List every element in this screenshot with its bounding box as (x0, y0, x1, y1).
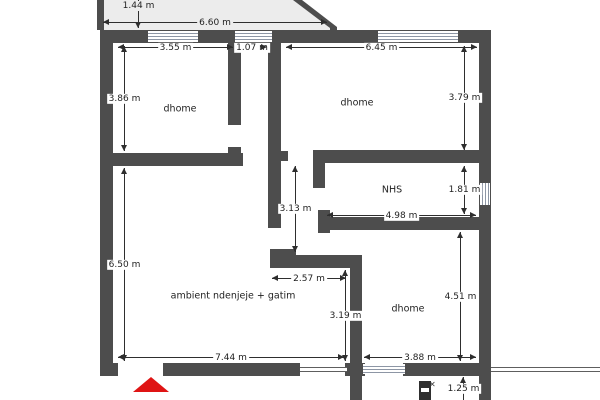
wall-extension-line (491, 367, 600, 372)
dimension-label: 7.44 m (213, 352, 249, 362)
dimension-nhs-height: 1.81 m (464, 166, 465, 214)
wall-nhs-north (313, 150, 491, 163)
dimension-balcony-depth: 1.44 m (138, 0, 139, 28)
dimension-label: 3.86 m (107, 93, 143, 103)
dimension-living-width: 7.44 m (118, 357, 344, 358)
door-swing-mark: ✕ (429, 381, 436, 389)
wall-room1-south (113, 153, 243, 166)
dimension-label: 6.45 m (364, 42, 400, 52)
dimension-label: 3.13 m (278, 204, 314, 214)
room-label-dhome-top-right: dhome (341, 98, 374, 109)
dimension-label: 1.81 m (447, 185, 483, 195)
wall-corridor-left (228, 43, 241, 125)
wall-left (100, 30, 113, 373)
dimension-label: 3.55 m (158, 42, 194, 52)
dimension-label: 1.25 m (446, 383, 482, 393)
wall-central (268, 43, 281, 228)
dimension-label: 3.88 m (402, 352, 438, 362)
wall-right (479, 30, 491, 400)
dimension-nook-height: 3.19 m (345, 270, 346, 361)
dimension-nhs-width: 4.98 m (327, 215, 476, 216)
wall-nook-north (270, 255, 362, 268)
dimension-label: 6.50 m (107, 259, 143, 269)
window-bottom-2 (363, 364, 405, 374)
room-label-dhome-top-left: dhome (164, 104, 197, 115)
dimension-room3-width: 3.88 m (364, 357, 476, 358)
entrance-arrow-icon (133, 377, 169, 392)
dimension-nook-width: 2.57 m (272, 278, 346, 279)
dimension-balcony-width: 6.60 m (103, 22, 327, 23)
wall-central-tab (281, 151, 288, 161)
dimension-room2-height: 3.79 m (464, 46, 465, 150)
room-label-nhs: NHS (382, 185, 402, 196)
floor-plan: 1.44 m 6.60 m 3.55 m 1.07 m 6.45 m 3.86 … (0, 0, 600, 400)
room-label-dhome-bottom: dhome (392, 304, 425, 315)
dimension-label: 4.98 m (384, 210, 420, 220)
dimension-label: 4.51 m (443, 291, 479, 301)
dimension-label: 2.57 m (291, 273, 327, 283)
dimension-corridor-width: 1.07 m (237, 47, 267, 48)
dimension-label: 1.44 m (121, 1, 157, 11)
wall-bottom-a (163, 363, 300, 376)
door-symbol-slit (421, 388, 429, 392)
dimension-entry-width: 1.25 m (463, 377, 464, 400)
wall-room3-west (350, 255, 362, 400)
wall-nhs-north-tab (313, 163, 325, 188)
window-bottom-1 (300, 367, 347, 372)
room-label-living-kitchen: ambient ndenjeje + gatim (171, 291, 296, 302)
wall-bottom-left-stub (100, 363, 118, 376)
window-top-3 (378, 31, 458, 42)
wall-room1-south-notch (228, 147, 241, 153)
wall-bottom-c (403, 363, 491, 376)
dimension-room2-width: 6.45 m (286, 47, 477, 48)
dimension-room3-height: 4.51 m (460, 232, 461, 361)
dimension-living-height: 6.50 m (124, 168, 125, 361)
window-top-2 (235, 31, 272, 42)
dimension-label: 6.60 m (197, 17, 233, 27)
dimension-label: 3.19 m (328, 310, 364, 320)
dimension-room1-height: 3.86 m (124, 46, 125, 151)
dimension-room1-width: 3.55 m (118, 47, 233, 48)
dimension-hall-height: 3.13 m (295, 166, 296, 252)
dimension-label: 1.07 m (234, 42, 270, 52)
window-top-1 (148, 31, 198, 42)
dimension-label: 3.79 m (447, 93, 483, 103)
